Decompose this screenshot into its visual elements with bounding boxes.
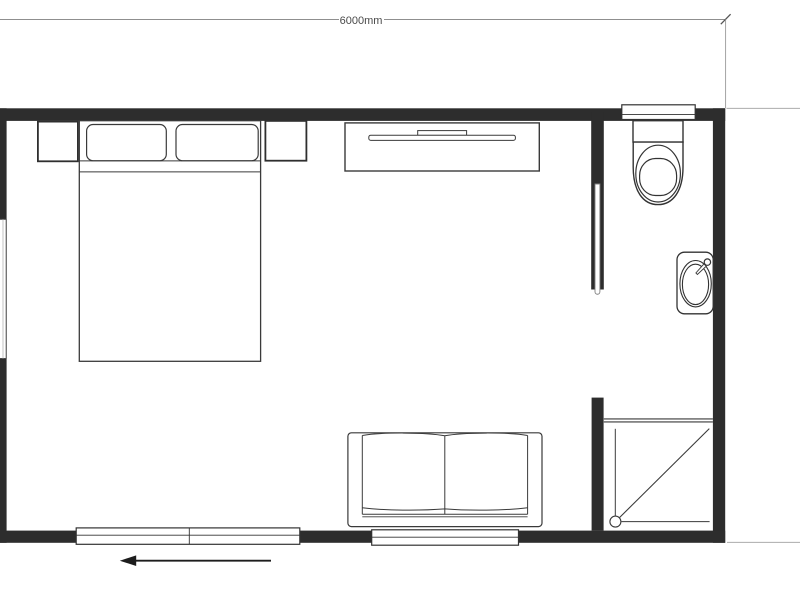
svg-text:6000mm: 6000mm: [340, 15, 383, 27]
